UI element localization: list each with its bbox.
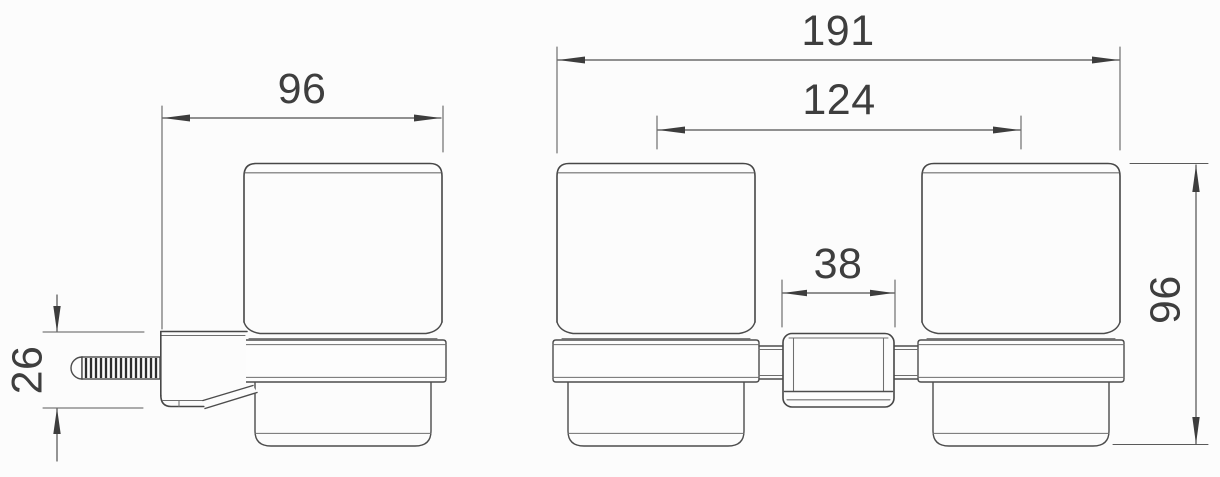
side-view (71, 164, 446, 447)
technical-drawing: 96 26 191 124 (0, 0, 1220, 477)
arrowhead (783, 290, 807, 297)
dimension-label: 96 (278, 65, 327, 113)
technical-drawing-canvas: 96 26 191 124 (0, 0, 1220, 477)
dimension-label: 38 (814, 240, 863, 288)
mounting-screw-pin (71, 357, 160, 379)
arrowhead (558, 57, 585, 64)
wall-bracket-front (783, 334, 894, 408)
tumbler-cup-front-right (918, 164, 1124, 447)
front-view (553, 164, 1124, 447)
arrowhead (870, 290, 894, 297)
dimension-label: 26 (4, 346, 52, 395)
arrowhead (163, 115, 190, 122)
dim-front-height: 96 (1113, 164, 1208, 445)
dim-front-center-spacing: 124 (657, 76, 1021, 149)
arrowhead (993, 127, 1020, 134)
tumbler-cup-front-left (553, 164, 759, 447)
mounting-rail-left (759, 346, 783, 379)
arrowhead (658, 127, 685, 134)
arrowhead (1192, 417, 1199, 444)
dimension-label: 124 (802, 76, 875, 124)
dim-front-bracket-width: 38 (782, 240, 895, 327)
dimension-label: 191 (801, 7, 874, 55)
dimension-label: 96 (1141, 276, 1189, 325)
arrowhead (414, 115, 441, 122)
arrowhead (53, 408, 60, 434)
tumbler-cup-side (240, 164, 446, 447)
arrowhead (1092, 57, 1119, 64)
arrowhead (53, 306, 60, 332)
dim-side-width: 96 (162, 65, 443, 329)
arrowhead (1192, 165, 1199, 192)
mounting-rail-right (894, 346, 918, 379)
